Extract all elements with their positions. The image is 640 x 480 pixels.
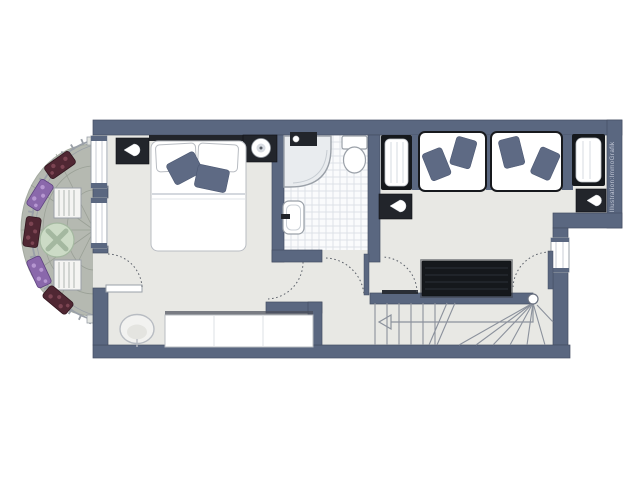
floor-plan-page: Illustration:ImmoGrafik (0, 0, 640, 480)
balcony-window-1 (91, 136, 107, 188)
illustration-credit: Illustration:ImmoGrafik (609, 141, 616, 213)
stair-hall-window (551, 238, 569, 272)
bench-right (572, 134, 605, 186)
wall-step (553, 213, 622, 228)
sink (281, 201, 304, 234)
wall-bathroom-bottom (272, 250, 322, 262)
wall-left-lower (93, 288, 108, 345)
balcony-bench-top (54, 188, 81, 218)
single-bed-1 (419, 132, 486, 191)
newel-post-icon (528, 294, 538, 304)
balcony (21, 137, 96, 323)
wardrobe (165, 311, 313, 347)
sideboard (420, 259, 513, 298)
bed-divider (562, 135, 573, 190)
bench-left (381, 135, 412, 190)
balcony-bench-bottom (54, 260, 81, 290)
double-bed (151, 141, 246, 251)
wall-right-lower-b (553, 272, 568, 345)
wall-right-lower-a (553, 228, 568, 238)
balcony-window-2 (91, 198, 107, 248)
single-bed-2 (491, 132, 562, 191)
floor-plan-drawing: Illustration:ImmoGrafik (0, 0, 640, 480)
faucet-icon (281, 214, 290, 219)
toilet (342, 136, 367, 173)
wall-bathroom-right (368, 135, 380, 262)
balcony-door-threshold (93, 252, 108, 289)
hallway (420, 259, 513, 298)
disc-lamp-icon (252, 139, 271, 158)
balcony-table (40, 223, 74, 257)
bed-headboard (149, 135, 248, 141)
